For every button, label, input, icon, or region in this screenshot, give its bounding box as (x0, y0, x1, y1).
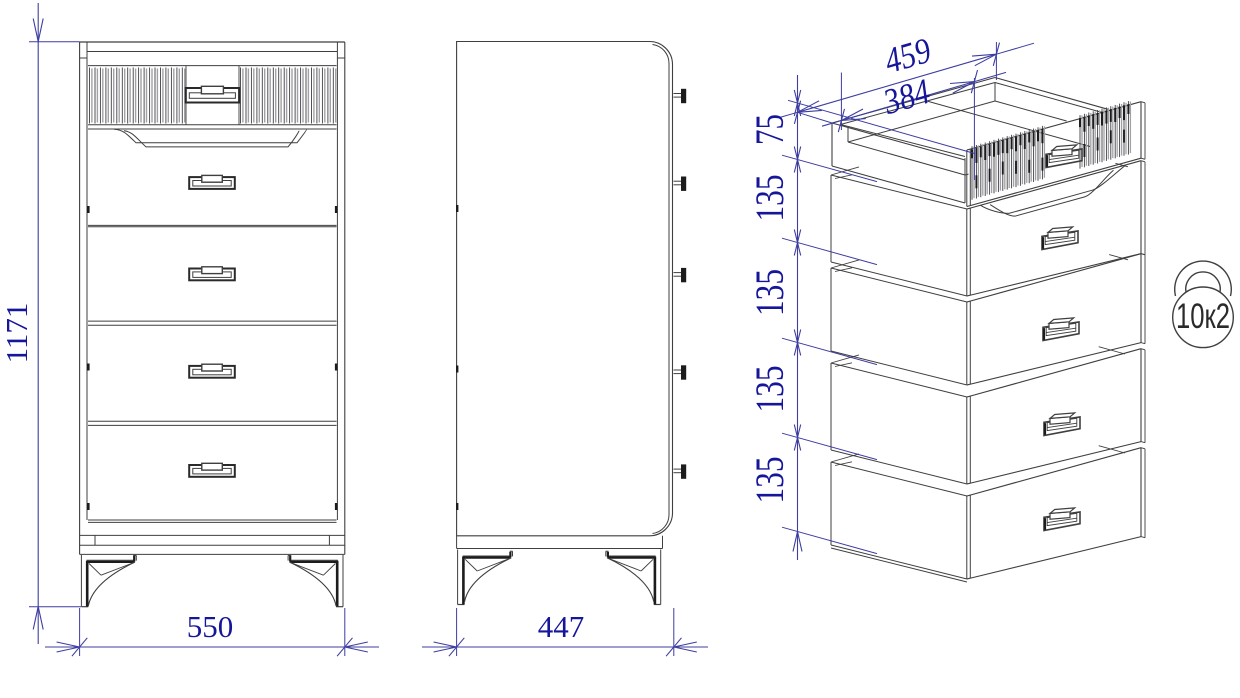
svg-text:135: 135 (747, 269, 792, 316)
svg-text:135: 135 (747, 457, 792, 504)
svg-text:1171: 1171 (0, 303, 34, 364)
svg-text:550: 550 (187, 609, 234, 644)
svg-text:10к2: 10к2 (1176, 297, 1230, 336)
svg-text:75: 75 (747, 114, 792, 145)
svg-text:135: 135 (747, 175, 792, 222)
svg-text:135: 135 (747, 366, 792, 413)
svg-text:447: 447 (538, 609, 585, 644)
